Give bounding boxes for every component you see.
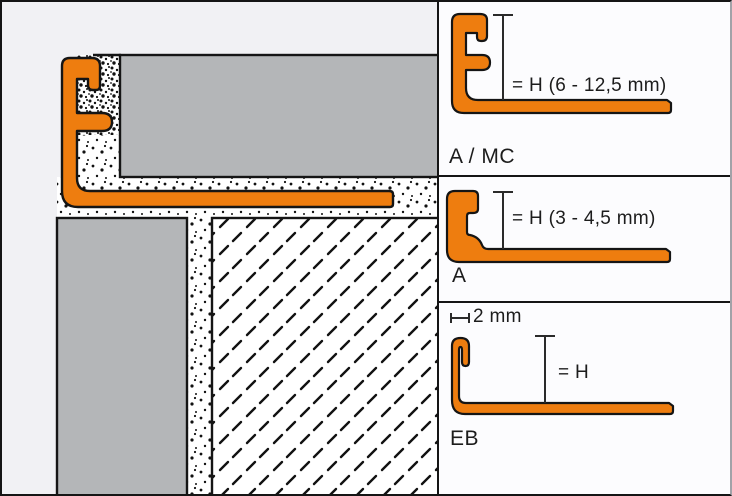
panel-a-mc: = H (6 - 12,5 mm) A / MC	[439, 0, 732, 175]
a-profile-drawing	[439, 177, 732, 301]
profile-variants-column: = H (6 - 12,5 mm) A / MC = H (3 - 4,5 mm…	[437, 0, 732, 496]
height-range-text: = H (6 - 12,5 mm)	[512, 75, 667, 97]
height-value-text: = H	[558, 362, 589, 384]
a-mc-profile-shape	[452, 14, 671, 113]
tile-vertical	[57, 218, 187, 496]
profile-name-a: A	[452, 264, 467, 288]
installation-cross-section	[0, 0, 437, 496]
height-range-text: = H (3 - 4,5 mm)	[512, 208, 656, 230]
screed-substrate	[212, 218, 437, 496]
width-value-text: 2 mm	[473, 306, 522, 328]
thinset-bed-vertical	[187, 218, 212, 496]
profile-installation-diagram: = H (6 - 12,5 mm) A / MC = H (3 - 4,5 mm…	[0, 0, 732, 496]
profile-name-eb: EB	[450, 427, 479, 451]
profile-name-a-mc: A / MC	[449, 145, 515, 169]
panel-eb: 2 mm = H EB	[439, 301, 732, 496]
panel-a: = H (3 - 4,5 mm) A	[439, 175, 732, 301]
tile-horizontal	[120, 55, 437, 177]
eb-profile-drawing	[439, 303, 732, 496]
mortar-pocket-sparse	[77, 135, 121, 178]
